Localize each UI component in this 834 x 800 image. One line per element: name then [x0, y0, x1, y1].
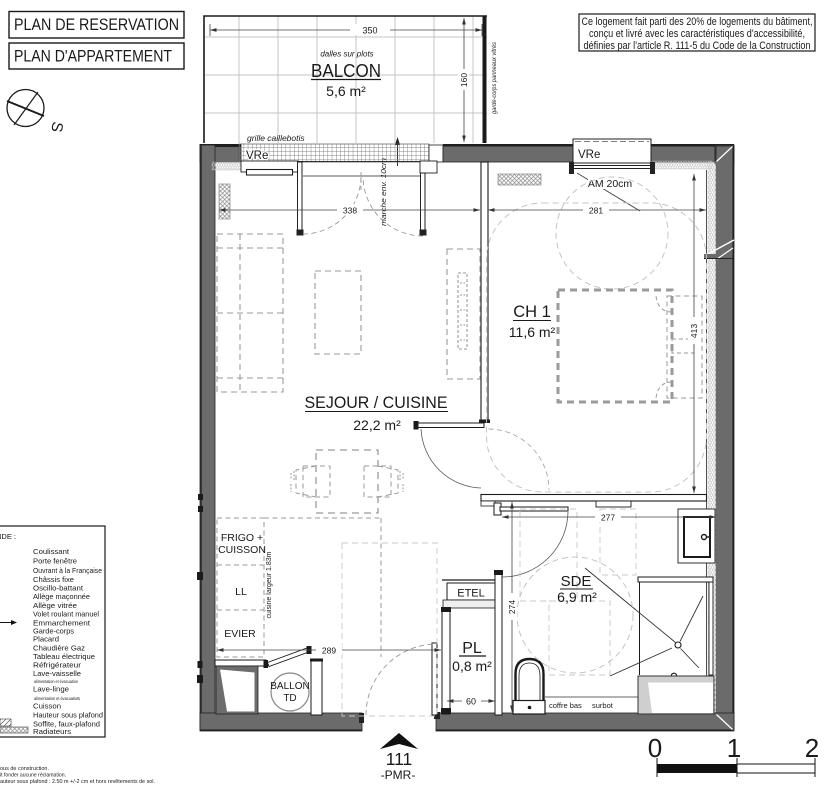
svg-text:VRe: VRe — [246, 150, 268, 162]
svg-text:PL: PL — [462, 640, 482, 657]
svg-text:6,9 m²: 6,9 m² — [557, 589, 597, 605]
svg-text:Radiateurs: Radiateurs — [33, 727, 71, 736]
svg-text:289: 289 — [322, 646, 336, 656]
svg-text:dalles sur plots: dalles sur plots — [320, 50, 373, 59]
svg-text:Lave-linge: Lave-linge — [33, 685, 69, 694]
svg-text:BALLON: BALLON — [270, 681, 309, 692]
svg-text:VRe: VRe — [578, 149, 600, 161]
svg-text:coffre bas: coffre bas — [549, 701, 582, 710]
svg-text:0: 0 — [648, 733, 662, 763]
svg-text:Porte fenêtre: Porte fenêtre — [33, 557, 77, 566]
svg-text:350: 350 — [362, 26, 377, 36]
svg-text:60: 60 — [466, 697, 476, 707]
svg-text:5,6 m²: 5,6 m² — [326, 83, 366, 99]
svg-text:111: 111 — [386, 749, 413, 769]
svg-text:1: 1 — [727, 733, 741, 763]
svg-text:22,2 m²: 22,2 m² — [353, 417, 401, 433]
svg-text:338: 338 — [343, 206, 357, 216]
svg-text:0,8 m²: 0,8 m² — [452, 658, 492, 674]
svg-text:BALCON: BALCON — [311, 60, 381, 81]
svg-text:garde-corps panneaux vitrés: garde-corps panneaux vitrés — [491, 42, 498, 114]
svg-text:SEJOUR / CUISINE: SEJOUR / CUISINE — [305, 394, 448, 412]
svg-text:160: 160 — [459, 73, 469, 87]
svg-text:grille caillebotis: grille caillebotis — [247, 133, 305, 143]
svg-text:Cuisson: Cuisson — [33, 702, 61, 711]
svg-text:alimentation et évacuatioʦ: alimentation et évacuatioʦ — [34, 696, 80, 702]
svg-text:Allège maçonnée: Allège maçonnée — [33, 592, 90, 601]
svg-text:Coulissant: Coulissant — [33, 547, 69, 556]
svg-text:cuisine largeur 1.83m: cuisine largeur 1.83m — [266, 551, 273, 618]
svg-text:marche env. 10cm: marche env. 10cm — [379, 158, 388, 226]
svg-text:ous de construction.: ous de construction. — [0, 766, 49, 772]
svg-text:CH 1: CH 1 — [513, 303, 551, 321]
svg-text:277: 277 — [601, 513, 615, 523]
svg-text:CUISSON: CUISSON — [218, 544, 266, 556]
svg-text:SDE: SDE — [561, 573, 592, 590]
svg-text:274: 274 — [507, 600, 517, 614]
svg-text:conçu et livré avec les caract: conçu et livré avec les caractéristiques… — [589, 28, 805, 40]
svg-text:TD: TD — [283, 693, 296, 704]
svg-text:LEGENDE :: LEGENDE : — [0, 532, 16, 541]
svg-text:Volet roulant manuel: Volet roulant manuel — [33, 610, 99, 619]
svg-text:413: 413 — [689, 324, 699, 338]
svg-text:11,6 m²: 11,6 m² — [509, 324, 556, 340]
svg-text:281: 281 — [589, 206, 603, 216]
svg-text:-PMR-: -PMR- — [381, 768, 416, 782]
svg-text:EVIER: EVIER — [224, 628, 256, 640]
svg-text:alimentation et évacuation: alimentation et évacuation — [34, 679, 78, 685]
svg-text:Lave-vaisselle: Lave-vaisselle — [33, 669, 81, 678]
svg-text:Hauteur sous plafond: Hauteur sous plafond — [33, 711, 103, 720]
svg-text:PLAN D'APPARTEMENT: PLAN D'APPARTEMENT — [14, 47, 172, 66]
svg-text:ETEL: ETEL — [457, 588, 485, 600]
svg-text:PLAN DE RESERVATION: PLAN DE RESERVATION — [14, 15, 179, 34]
svg-text:surbot: surbot — [592, 701, 614, 710]
svg-text:Ce logement fait parti des 20%: Ce logement fait parti des 20% de logeme… — [582, 16, 813, 28]
svg-text:définies par l'article R. 111-: définies par l'article R. 111-5 du Code … — [584, 40, 811, 52]
svg-text:2: 2 — [805, 733, 819, 763]
svg-text:LL: LL — [235, 586, 247, 598]
svg-text:FRIGO +: FRIGO + — [221, 532, 263, 544]
svg-text:auteur sous plafond : 2.50 m +: auteur sous plafond : 2.50 m +/-2 cm et … — [0, 779, 155, 785]
svg-text:Placard: Placard — [33, 635, 59, 644]
svg-text:Ouvrant à la Française: Ouvrant à la Française — [33, 566, 102, 575]
svg-text:it fonder aucune réclamation.: it fonder aucune réclamation. — [0, 773, 66, 779]
